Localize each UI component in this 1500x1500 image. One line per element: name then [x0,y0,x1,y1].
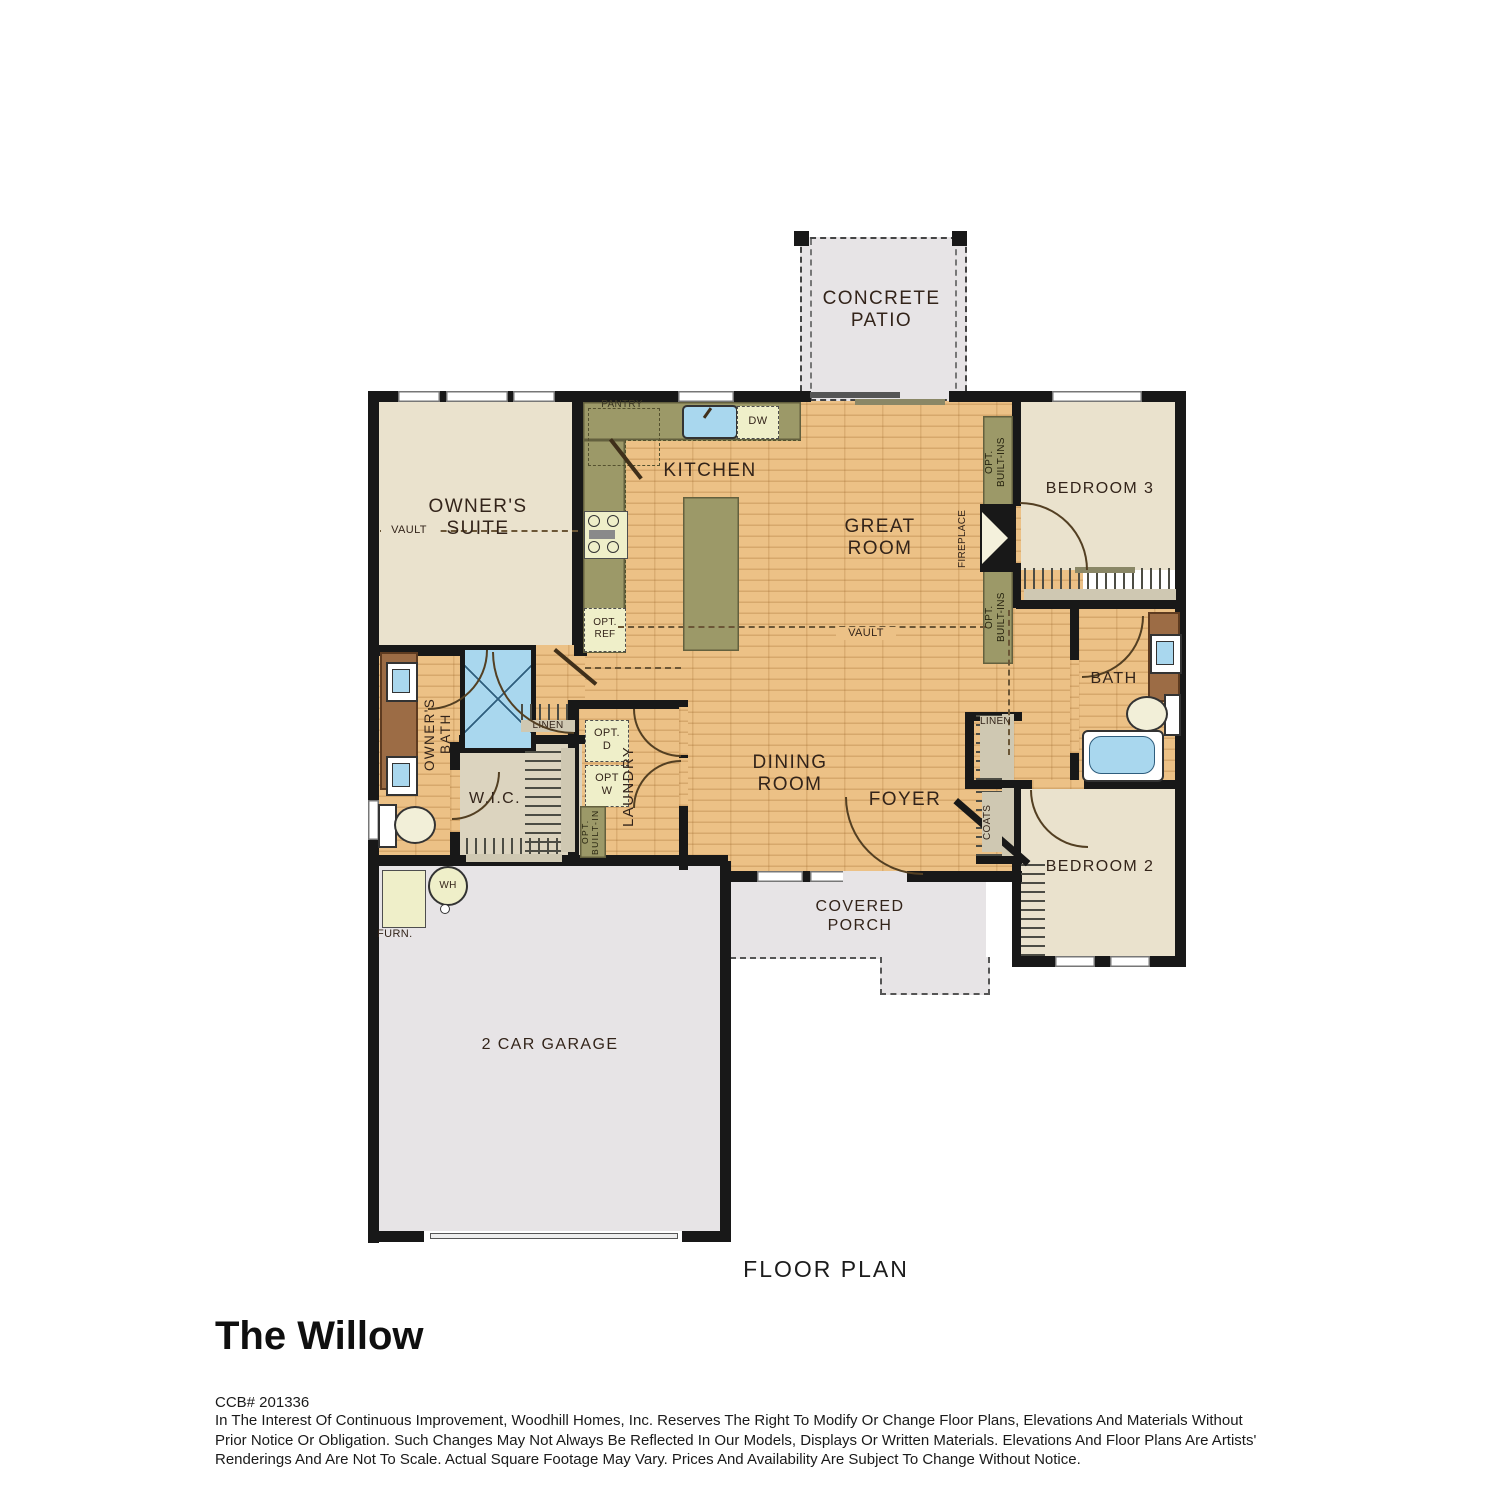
vault-label: VAULT [381,524,437,537]
burner [588,515,600,527]
owners-bath-label: OWNER'S BATH [422,668,456,800]
furnace-label: FURN. [377,928,429,941]
toilet-bowl [1126,696,1168,732]
laundry-label: LAUNDRY [620,726,646,846]
vanity-sink-icon [386,756,418,796]
patio-post [794,231,809,246]
owners-suite-right-wall [572,391,583,653]
tub-icon [1082,730,1164,782]
door-opening [1032,780,1084,789]
door-opening [1070,660,1079,753]
bedroom3-label: BEDROOM 3 [1040,480,1160,499]
window [513,391,555,402]
vanity-sink-icon [386,662,418,702]
bedroom2-label: BEDROOM 2 [1040,858,1160,877]
furnace-icon [382,870,426,928]
water-heater-icon: WH [428,866,468,906]
floor-plan-sheet: CONCRETE PATIO [0,0,1500,1500]
opt-builtins-label: OPT. BUILT-INS [984,420,1012,504]
window [1055,956,1095,967]
burner [607,541,619,553]
fireplace-label: FIREPLACE [957,500,977,578]
ccb-number: CCB# 201336 [215,1394,309,1411]
window [757,871,803,882]
plan-title: The Willow [215,1314,424,1359]
disclaimer-text: In The Interest Of Continuous Improvemen… [215,1411,1345,1470]
sink-basin [392,763,410,787]
kitchen-label: KITCHEN [645,460,775,482]
bedroom3-left-wall-upper [1012,391,1021,506]
fireplace-hearth [982,512,1008,564]
front-door-opening [843,871,907,882]
opt-builtin-label: OPT. BUILT-IN [580,806,606,858]
window [1052,391,1142,402]
patio-door-post [797,391,811,402]
window [446,391,508,402]
wic-left-wall-lower [450,832,460,862]
stove-icon [584,511,628,559]
patio-label: CONCRETE PATIO [800,288,963,333]
sink-basin [392,669,410,693]
patio-door-post [949,391,963,402]
dishwasher-icon: DW [737,406,779,439]
opt-builtins-label: OPT. BUILT-INS [984,574,1012,660]
sliding-door-icon [810,392,900,398]
bath-sink-icon [1150,634,1182,674]
bedroom2-bottom-wall [1012,956,1186,967]
laundry-top-wall [568,700,688,709]
wic-label: W.I.C. [450,790,540,809]
burner [588,541,600,553]
garage-label: 2 CAR GARAGE [465,1036,635,1055]
ceiling-break-line [585,667,681,669]
sliding-door-icon [855,399,945,405]
opt-refrigerator: OPT. REF [584,608,626,652]
floor-plan-caption: FLOOR PLAN [676,1256,976,1283]
great-room-label: GREAT ROOM [815,516,945,561]
toilet-icon [378,802,436,846]
covered-porch-label: COVERED PORCH [790,898,930,936]
garage-door-line [430,1233,678,1239]
bedroom2-closet-rod [1021,864,1045,956]
bedroom3-closet-wall [1016,600,1181,609]
bath-label: BATH [1082,670,1146,689]
pantry-label: PANTRY [586,399,658,411]
toilet-bowl [394,806,436,844]
foyer-label: FOYER [860,789,950,811]
garage-right-wall [720,861,731,1242]
vault-line [618,626,986,628]
window [398,391,440,402]
porch-step [880,957,990,995]
fireplace-icon [980,504,1016,572]
patio-post [952,231,967,246]
linen-closet-wall [965,712,974,787]
window [678,391,734,402]
sink-basin [1156,641,1174,665]
bath-left-wall-upper [1070,608,1079,660]
linen2-label: LINEN [980,716,1004,778]
wic-shelf-right [561,748,575,852]
window [1110,956,1150,967]
tub-basin [1089,736,1155,774]
floor-drain-icon [440,904,450,914]
stove-panel [589,530,615,539]
dishwasher-label: DW [738,415,778,428]
wic-shelf-bottom [466,854,562,862]
bedroom3-closet-shelf [1024,589,1176,600]
toilet-icon [1124,692,1180,734]
dining-room-label: DINING ROOM [725,752,855,797]
wh-label: WH [430,880,466,892]
coats-label: COATS [982,792,1002,852]
vault-label: VAULT [836,627,896,640]
burner [607,515,619,527]
opt-ref-label: OPT. REF [585,617,625,641]
